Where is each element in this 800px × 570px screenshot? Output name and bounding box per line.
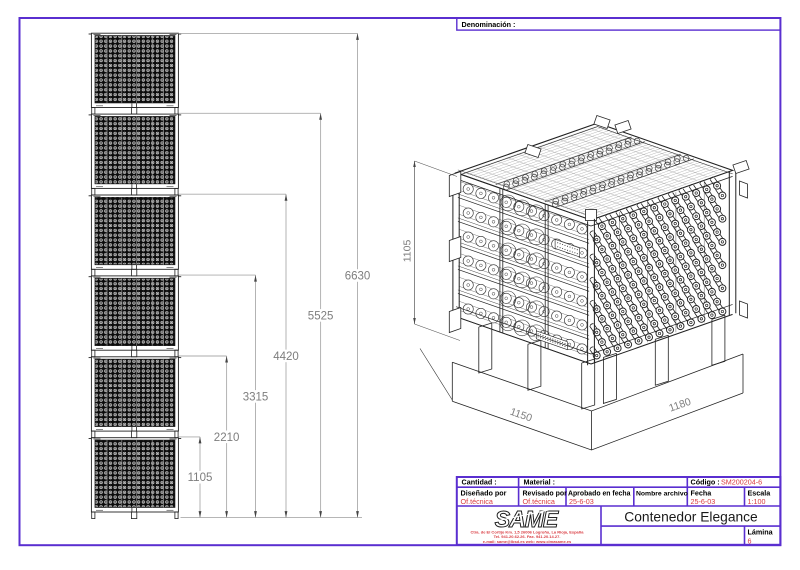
- svg-text:1105: 1105: [188, 472, 213, 484]
- svg-text:Código :: Código :: [691, 478, 720, 487]
- svg-text:6630: 6630: [345, 271, 371, 283]
- svg-text:Of.técnica: Of.técnica: [523, 497, 555, 506]
- svg-text:Fecha: Fecha: [691, 489, 713, 498]
- svg-text:2210: 2210: [214, 432, 240, 444]
- svg-text:Cantidad :: Cantidad :: [462, 478, 497, 487]
- svg-text:Diseñado por: Diseñado por: [461, 489, 507, 498]
- svg-text:5525: 5525: [308, 310, 334, 322]
- svg-text:Escala: Escala: [748, 489, 772, 498]
- svg-text:Of.técnica: Of.técnica: [461, 497, 493, 506]
- svg-text:25-6-03: 25-6-03: [569, 497, 594, 506]
- svg-text:Material :: Material :: [524, 478, 556, 487]
- svg-text:Nombre archivo: Nombre archivo: [636, 491, 688, 498]
- svg-text:4420: 4420: [273, 351, 299, 363]
- svg-text:1:100: 1:100: [748, 497, 766, 506]
- svg-text:1105: 1105: [402, 240, 414, 263]
- svg-text:Denominación :: Denominación :: [462, 20, 516, 29]
- svg-text:25-6-03: 25-6-03: [691, 497, 716, 506]
- svg-text:Lámina: Lámina: [748, 528, 774, 537]
- svg-text:6: 6: [748, 536, 752, 545]
- svg-text:Contenedor Elegance: Contenedor Elegance: [624, 510, 758, 525]
- svg-text:3315: 3315: [243, 391, 269, 403]
- svg-text:e-mail: same@lbsd.es web: www: e-mail: same@lbsd.es web: www.clmasame.e…: [483, 539, 572, 544]
- svg-text:SM200204-6: SM200204-6: [721, 478, 762, 487]
